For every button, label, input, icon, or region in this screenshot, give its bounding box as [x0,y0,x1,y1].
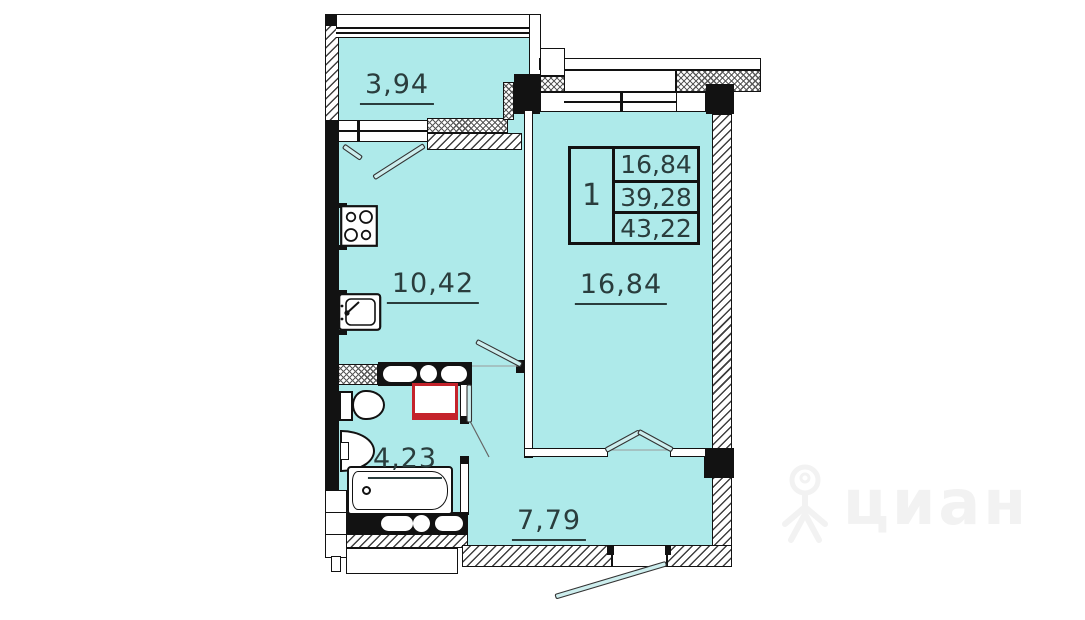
door-swing-line [470,421,489,457]
watermark-brand-text: циан [843,472,1029,534]
watermark-pin-person-icon [775,462,833,544]
watermark: циан [775,462,1029,544]
balcony-door-leaf [373,144,425,180]
living-room-door-leaf [638,430,674,452]
entrance-door-leaf [555,562,666,599]
floor-plan: 3,94 10,42 16,84 4,23 7,79 1 16,84 39,28… [0,0,1085,620]
kitchen-door-leaf [476,340,522,367]
bathroom-door-leaf [467,385,472,422]
balcony-door-leaf [343,144,363,160]
living-room-door-leaf [605,430,641,452]
